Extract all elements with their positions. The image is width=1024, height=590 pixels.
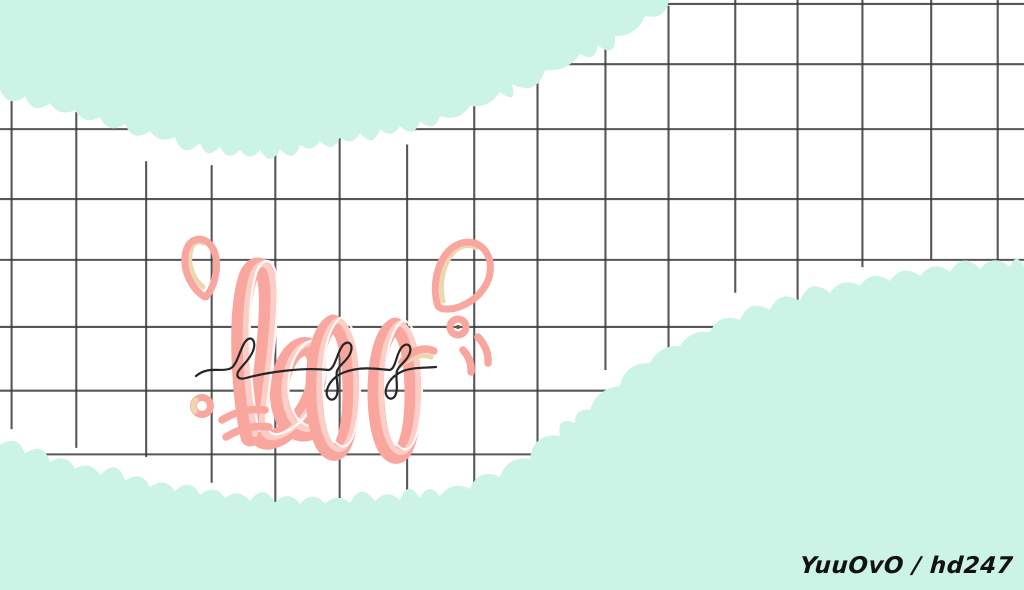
card-canvas: bff [0, 0, 1024, 590]
letter-f2 [376, 320, 422, 455]
artwork-svg: bff [0, 0, 1024, 590]
leaf-large-icon [435, 242, 490, 309]
speed-dashes-right-icon [463, 337, 488, 372]
donut-dot [456, 325, 460, 329]
artist-signature: YuuOvO / hd247 [799, 553, 1014, 579]
bottom-mint-blob [0, 259, 1024, 590]
donut-left-icon [193, 398, 210, 415]
donut-right-icon [450, 319, 466, 335]
bff-lettering: bff [196, 261, 436, 455]
top-mint-blob [0, 0, 674, 159]
